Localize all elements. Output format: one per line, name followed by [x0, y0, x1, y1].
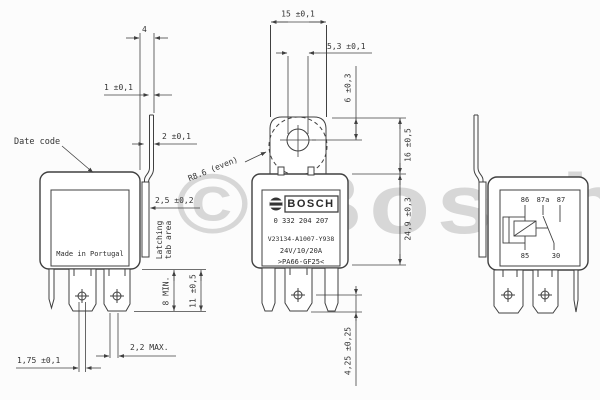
date-code-label: Date code: [14, 137, 60, 147]
rating-text: 24V/10/20A: [280, 247, 322, 255]
latch-rail: [479, 182, 486, 257]
dim-body-height: 24,9 ±0,3: [404, 197, 413, 240]
right-view-linework: [474, 115, 588, 313]
dim-bracket-height: 16 ±0,5: [404, 128, 413, 162]
resistor-symbol: [503, 217, 509, 243]
latch-strip: [145, 115, 150, 183]
pin-87a-label: 87a: [537, 196, 550, 204]
dim-tab-width: 4: [142, 25, 147, 34]
dim-blade-max: 2,2 MAX.: [130, 343, 169, 352]
dim-hole-diameter: 5,3 ±0,1: [327, 42, 366, 51]
front-view-linework: [252, 25, 348, 311]
thin-pin: [49, 269, 54, 308]
dim-hole-to-tip: 4,25 ±0,25: [344, 327, 353, 375]
thin-pin: [574, 270, 578, 312]
dim-hole-offset: 6 ±0,3: [344, 74, 353, 103]
latch-rail: [142, 182, 149, 257]
terminal: [325, 268, 338, 311]
pin-30-label: 30: [552, 252, 560, 260]
type-code: V23134-A1007-Y938: [268, 235, 335, 243]
dim-tab-thickness: 1 ±0,1: [104, 83, 133, 92]
dim-terminal-length: 11 ±0,5: [189, 274, 198, 308]
pin-85-label: 85: [521, 252, 529, 260]
pin-87-label: 87: [557, 196, 565, 204]
bosch-symbol-icon: [270, 198, 283, 211]
part-number: 0 332 204 207: [274, 217, 329, 225]
dim-contact-min: 8 MIN.: [162, 277, 171, 306]
dim-bracket-width: 15 ±0,1: [281, 10, 315, 19]
dim-tab-step: 2 ±0,1: [162, 132, 191, 141]
dim-blade-thickness: 1,75 ±0,1: [17, 356, 60, 365]
pin-86-label: 86: [521, 196, 529, 204]
made-in-text: Made in Portugal: [56, 250, 123, 258]
latching-tab-area-label: Latchingtab area: [155, 221, 173, 260]
material-text: >PA66-GF25<: [278, 258, 324, 266]
terminal: [262, 268, 275, 311]
dim-latch-depth: 2,5 ±0,2: [155, 196, 194, 205]
brand-text: BOSCH: [287, 198, 334, 210]
drawing-sheet: © Bosch: [0, 0, 600, 400]
